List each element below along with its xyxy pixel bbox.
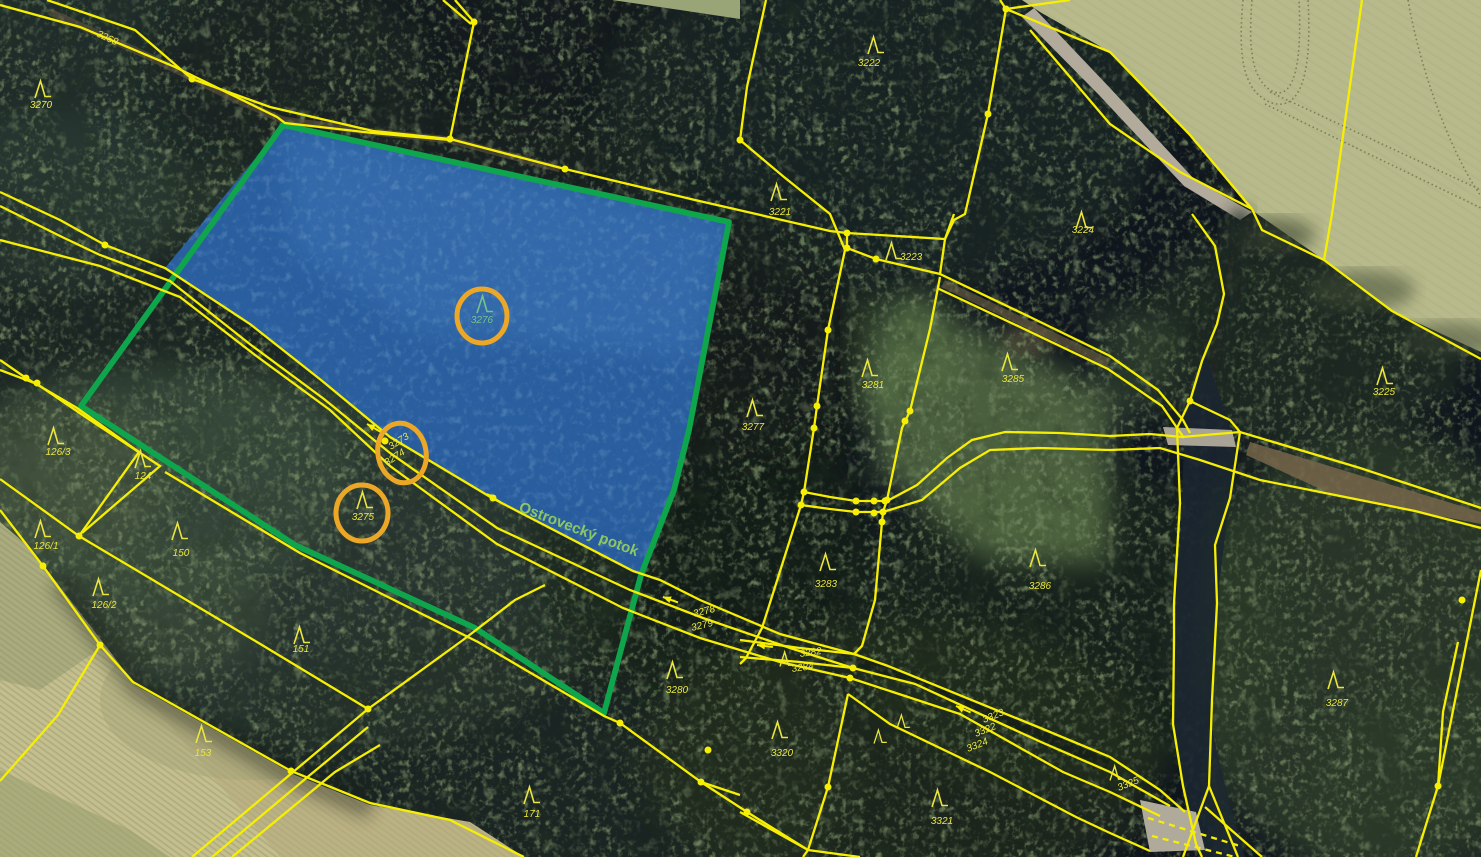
svg-text:3287: 3287 [1326,698,1349,709]
svg-text:126/1: 126/1 [33,541,58,552]
svg-text:3224: 3224 [1072,225,1095,236]
svg-text:124: 124 [135,471,152,482]
svg-text:3277: 3277 [742,422,765,433]
svg-text:126/3: 126/3 [45,447,70,458]
svg-text:126/2: 126/2 [91,600,116,611]
svg-text:3283: 3283 [815,579,838,590]
svg-text:151: 151 [293,644,310,655]
svg-text:3320: 3320 [771,748,794,759]
svg-text:3321: 3321 [931,816,953,827]
svg-text:150: 150 [173,548,190,559]
svg-text:171: 171 [524,809,541,820]
svg-text:3281: 3281 [862,380,884,391]
svg-text:3225: 3225 [1373,387,1396,398]
svg-text:3270: 3270 [30,100,53,111]
svg-text:3221: 3221 [769,207,791,218]
svg-text:3280: 3280 [666,685,689,696]
svg-text:153: 153 [195,748,212,759]
svg-text:3276: 3276 [471,315,494,326]
svg-text:3223: 3223 [900,252,923,263]
svg-text:3285: 3285 [1002,374,1025,385]
svg-text:3275: 3275 [352,512,375,523]
svg-text:3286: 3286 [1029,581,1052,592]
svg-text:3222: 3222 [858,58,881,69]
